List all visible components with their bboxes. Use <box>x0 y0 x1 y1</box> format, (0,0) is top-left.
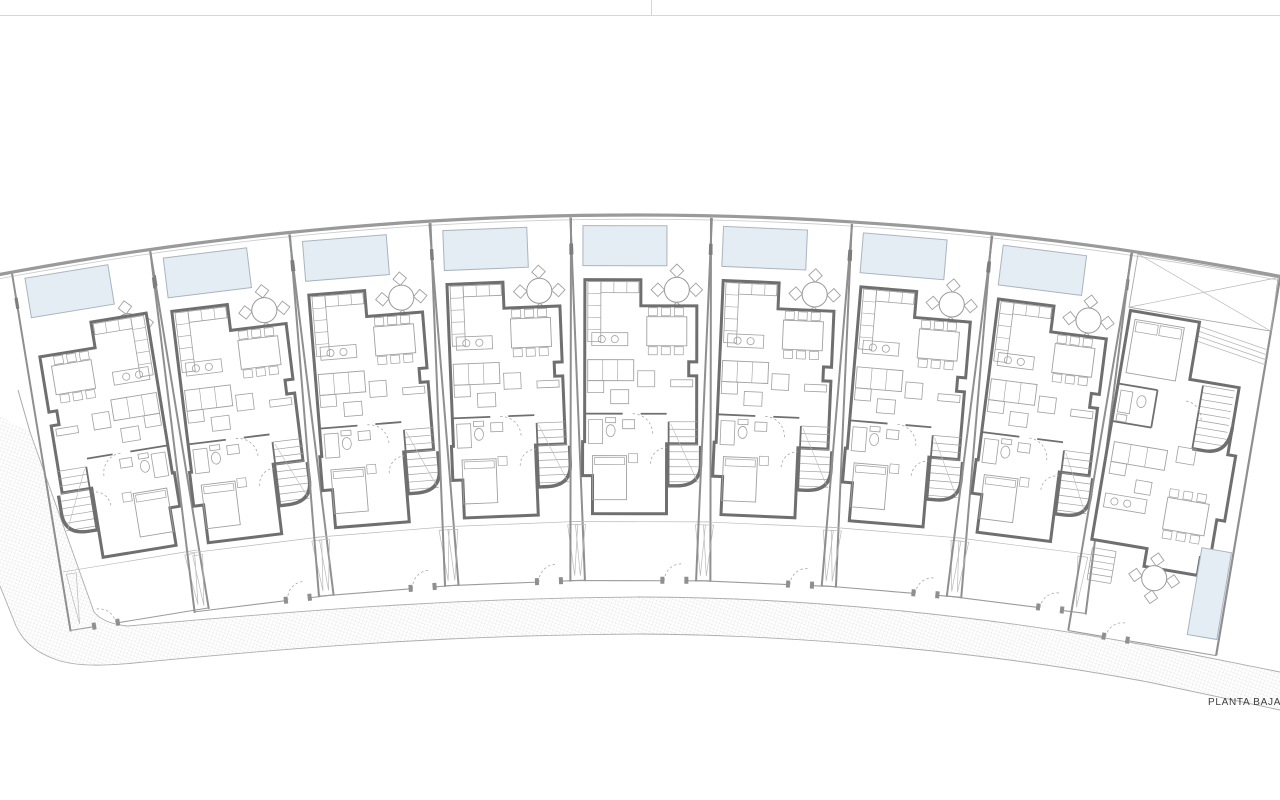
house-outline <box>711 280 835 519</box>
unit-4 <box>429 217 587 588</box>
pool <box>25 265 114 318</box>
front-yard <box>822 527 967 600</box>
unit-2 <box>149 234 336 615</box>
pool <box>302 235 389 282</box>
pergola-line <box>1195 336 1268 360</box>
pergola-line <box>1194 341 1267 365</box>
pool <box>583 226 667 266</box>
site-plan-drawing <box>0 0 1280 800</box>
pool <box>443 227 529 270</box>
front-yard <box>946 537 1093 616</box>
unit-8 <box>945 236 1133 617</box>
unit-6 <box>694 218 853 590</box>
front-yard <box>443 521 585 589</box>
unit-5 <box>569 218 713 584</box>
plan-title: PLANTA BAJA <box>1208 697 1280 708</box>
house <box>570 280 711 584</box>
front-yard <box>570 522 710 584</box>
pergola-line <box>1196 331 1269 355</box>
fence <box>822 586 914 594</box>
units-layer <box>10 217 1280 658</box>
fence <box>696 581 788 585</box>
front-yard <box>187 536 334 615</box>
fence <box>947 596 1038 608</box>
unit-9 <box>1068 252 1280 659</box>
pool <box>998 245 1086 295</box>
pool <box>722 226 808 270</box>
floor-plan-page: PLANTA BAJA <box>0 0 1280 800</box>
pool <box>163 248 251 298</box>
pool <box>860 233 947 280</box>
unit-7 <box>820 224 993 601</box>
front-yard <box>314 526 459 599</box>
pergola-line <box>1197 326 1270 350</box>
left-site-boundary <box>18 390 30 432</box>
house-outline <box>582 280 696 514</box>
unit-3 <box>288 223 460 599</box>
front-yard <box>696 522 839 590</box>
house-outline <box>839 287 972 530</box>
